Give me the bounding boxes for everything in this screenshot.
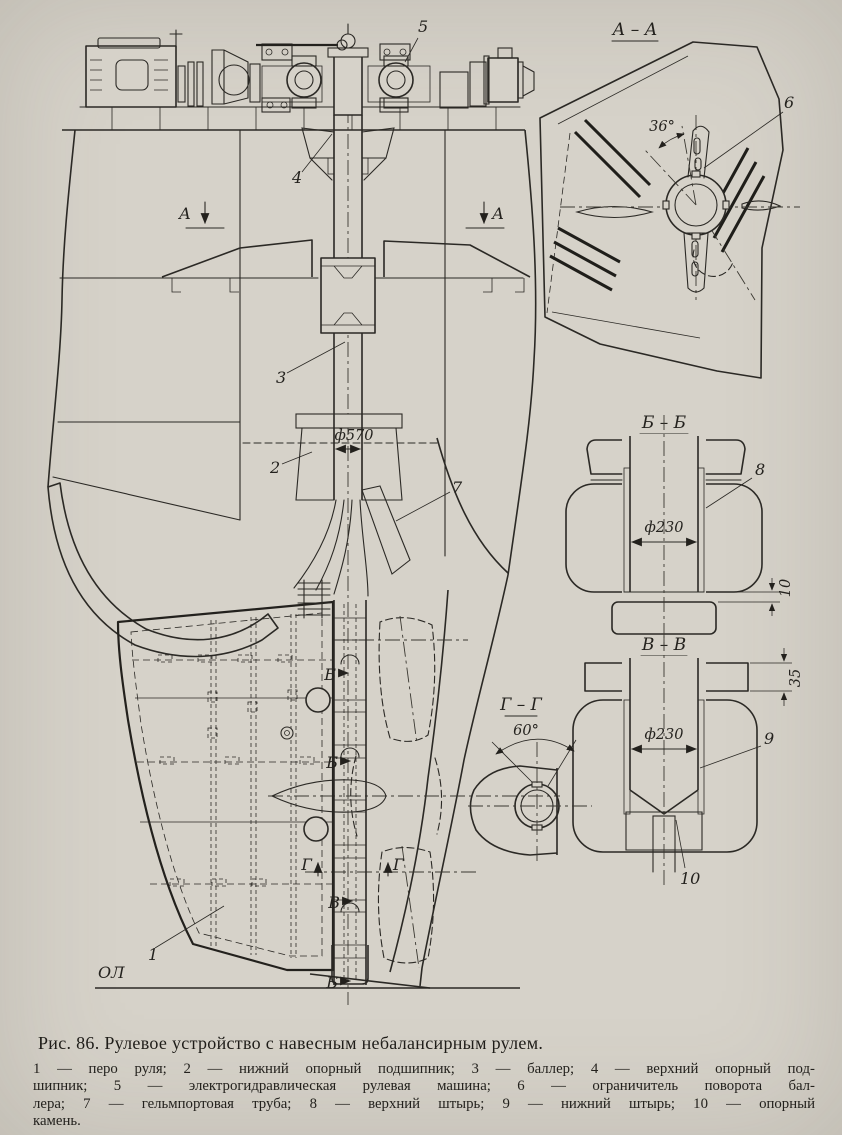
- svg-text:Б: Б: [323, 665, 336, 684]
- vv-dim-35: 35: [750, 648, 804, 706]
- svg-text:ф230: ф230: [644, 727, 683, 743]
- post-hidden-bolts: [344, 604, 356, 980]
- callout-7: 7: [452, 478, 463, 497]
- gg-angle-label: 60°: [513, 723, 539, 739]
- aa-stop-pad-left: [577, 207, 652, 218]
- gg-post-outline: [470, 766, 557, 855]
- callout-6-leader: [704, 112, 783, 168]
- svg-text:В: В: [327, 893, 340, 912]
- figure-legend: 1 — перо руля; 2 — нижний опорный подшип…: [33, 1061, 815, 1130]
- gudgeon-boss-lower: [304, 817, 328, 841]
- callout-10-leader: [676, 820, 685, 868]
- blade-horizontals: [132, 660, 333, 884]
- aperture-upper: [379, 618, 435, 742]
- section-aa-title: А – А: [611, 20, 657, 40]
- dim-dia570: ф570: [334, 428, 373, 449]
- valve-body-left: [262, 44, 322, 112]
- pump-unit-left: [170, 30, 260, 106]
- cut-marker-g-left: Г: [300, 855, 318, 876]
- rudder-blade: [118, 602, 333, 970]
- engineering-drawing: А А Б Б В Б Г Г: [0, 0, 842, 1135]
- drain-plug: [281, 727, 293, 739]
- callout-8: 8: [755, 460, 765, 479]
- callout-9-leader: [700, 746, 761, 768]
- aperture-axes: [400, 616, 419, 968]
- bb-dim-10: 10: [706, 578, 794, 616]
- legend-line-1: 1 — перо руля; 2 — нижний опорный подшип…: [33, 1061, 815, 1078]
- legend-line-2: шипник; 5 — электрогидравлическая рулева…: [33, 1078, 815, 1095]
- callout-10: 10: [680, 869, 700, 888]
- counter-curve: [437, 438, 508, 573]
- svg-text:Г: Г: [300, 855, 313, 874]
- sternframe-forward-edge: [390, 590, 448, 972]
- aa-angle-label: 36°: [649, 119, 675, 135]
- callout-9: 9: [764, 729, 774, 748]
- post-edges: [334, 600, 366, 985]
- gg-angle-arc: [496, 739, 574, 754]
- blade-outline: [118, 602, 333, 970]
- svg-text:35: 35: [788, 669, 804, 687]
- cut-marker-a-left: А: [178, 202, 224, 228]
- main-elevation-view: А А Б Б В Б Г Г: [48, 17, 560, 1005]
- cut-marker-b-bottom: Б: [325, 973, 350, 992]
- baseline-label: ОЛ: [98, 963, 125, 982]
- svg-text:Г: Г: [392, 855, 405, 874]
- legend-line-3: лера; 7 — гельмпортовая труба; 8 — верхн…: [33, 1096, 815, 1113]
- cut-label-a-left: А: [178, 204, 191, 223]
- gg-angle-rays: [492, 740, 576, 786]
- callout-5: 5: [418, 17, 428, 36]
- svg-text:Б: Б: [325, 973, 338, 992]
- drawing-page: А А Б Б В Б Г Г: [0, 0, 842, 1135]
- hull-right-torn-edge: [508, 130, 536, 575]
- svg-text:ф570: ф570: [334, 428, 373, 444]
- svg-text:Б: Б: [325, 753, 338, 772]
- lower-support-bearing: [296, 413, 402, 500]
- legend-line-4: камень.: [33, 1113, 815, 1130]
- cut-marker-g-right: Г: [388, 855, 405, 876]
- stern-shell-band: [48, 483, 278, 656]
- hull-bottom-diagonal: [53, 477, 240, 520]
- callout-4: 4: [291, 168, 302, 187]
- svg-text:ф230: ф230: [644, 520, 683, 536]
- baseline: ОЛ: [95, 963, 520, 988]
- sternframe: [268, 575, 560, 988]
- callout-6: 6: [784, 93, 794, 112]
- cut-label-a-right: А: [491, 204, 504, 223]
- section-bb: Б – Б ф230 8 10: [566, 413, 794, 645]
- section-aa: А – А 36° 6: [540, 20, 800, 378]
- blade-inner-contour: [131, 613, 322, 956]
- figure-caption: Рис. 86. Рулевое устройство с навесным н…: [38, 1033, 818, 1054]
- svg-text:10: 10: [778, 579, 794, 597]
- section-gg-title: Г – Г: [499, 695, 543, 715]
- pump-unit-right: [440, 48, 534, 108]
- aa-swing-arc: [693, 250, 733, 276]
- electric-motor: [86, 38, 176, 107]
- foundation-blocks: [112, 107, 496, 130]
- cut-marker-b-lower: Б: [325, 753, 350, 772]
- gudgeon-boss-upper: [306, 688, 330, 712]
- stock-coupling: [321, 258, 375, 333]
- helmport-tube: [294, 486, 410, 596]
- callout-8-leader: [706, 478, 752, 508]
- gland-flange-bolts: [298, 580, 330, 618]
- section-vv-title: В – В: [641, 635, 686, 655]
- valve-body-right: [368, 44, 430, 112]
- callout-2: 2: [269, 458, 280, 477]
- callout-leaders: [155, 38, 450, 948]
- cut-marker-a-right: А: [466, 202, 504, 228]
- steering-gear-machinery: [80, 24, 534, 130]
- hull-left-torn-edge: [48, 130, 75, 487]
- callout-1: 1: [148, 945, 158, 964]
- section-vv: В – В ф230 9 10 35: [573, 635, 804, 888]
- callout-3: 3: [276, 368, 286, 387]
- hull-structure: [48, 130, 536, 656]
